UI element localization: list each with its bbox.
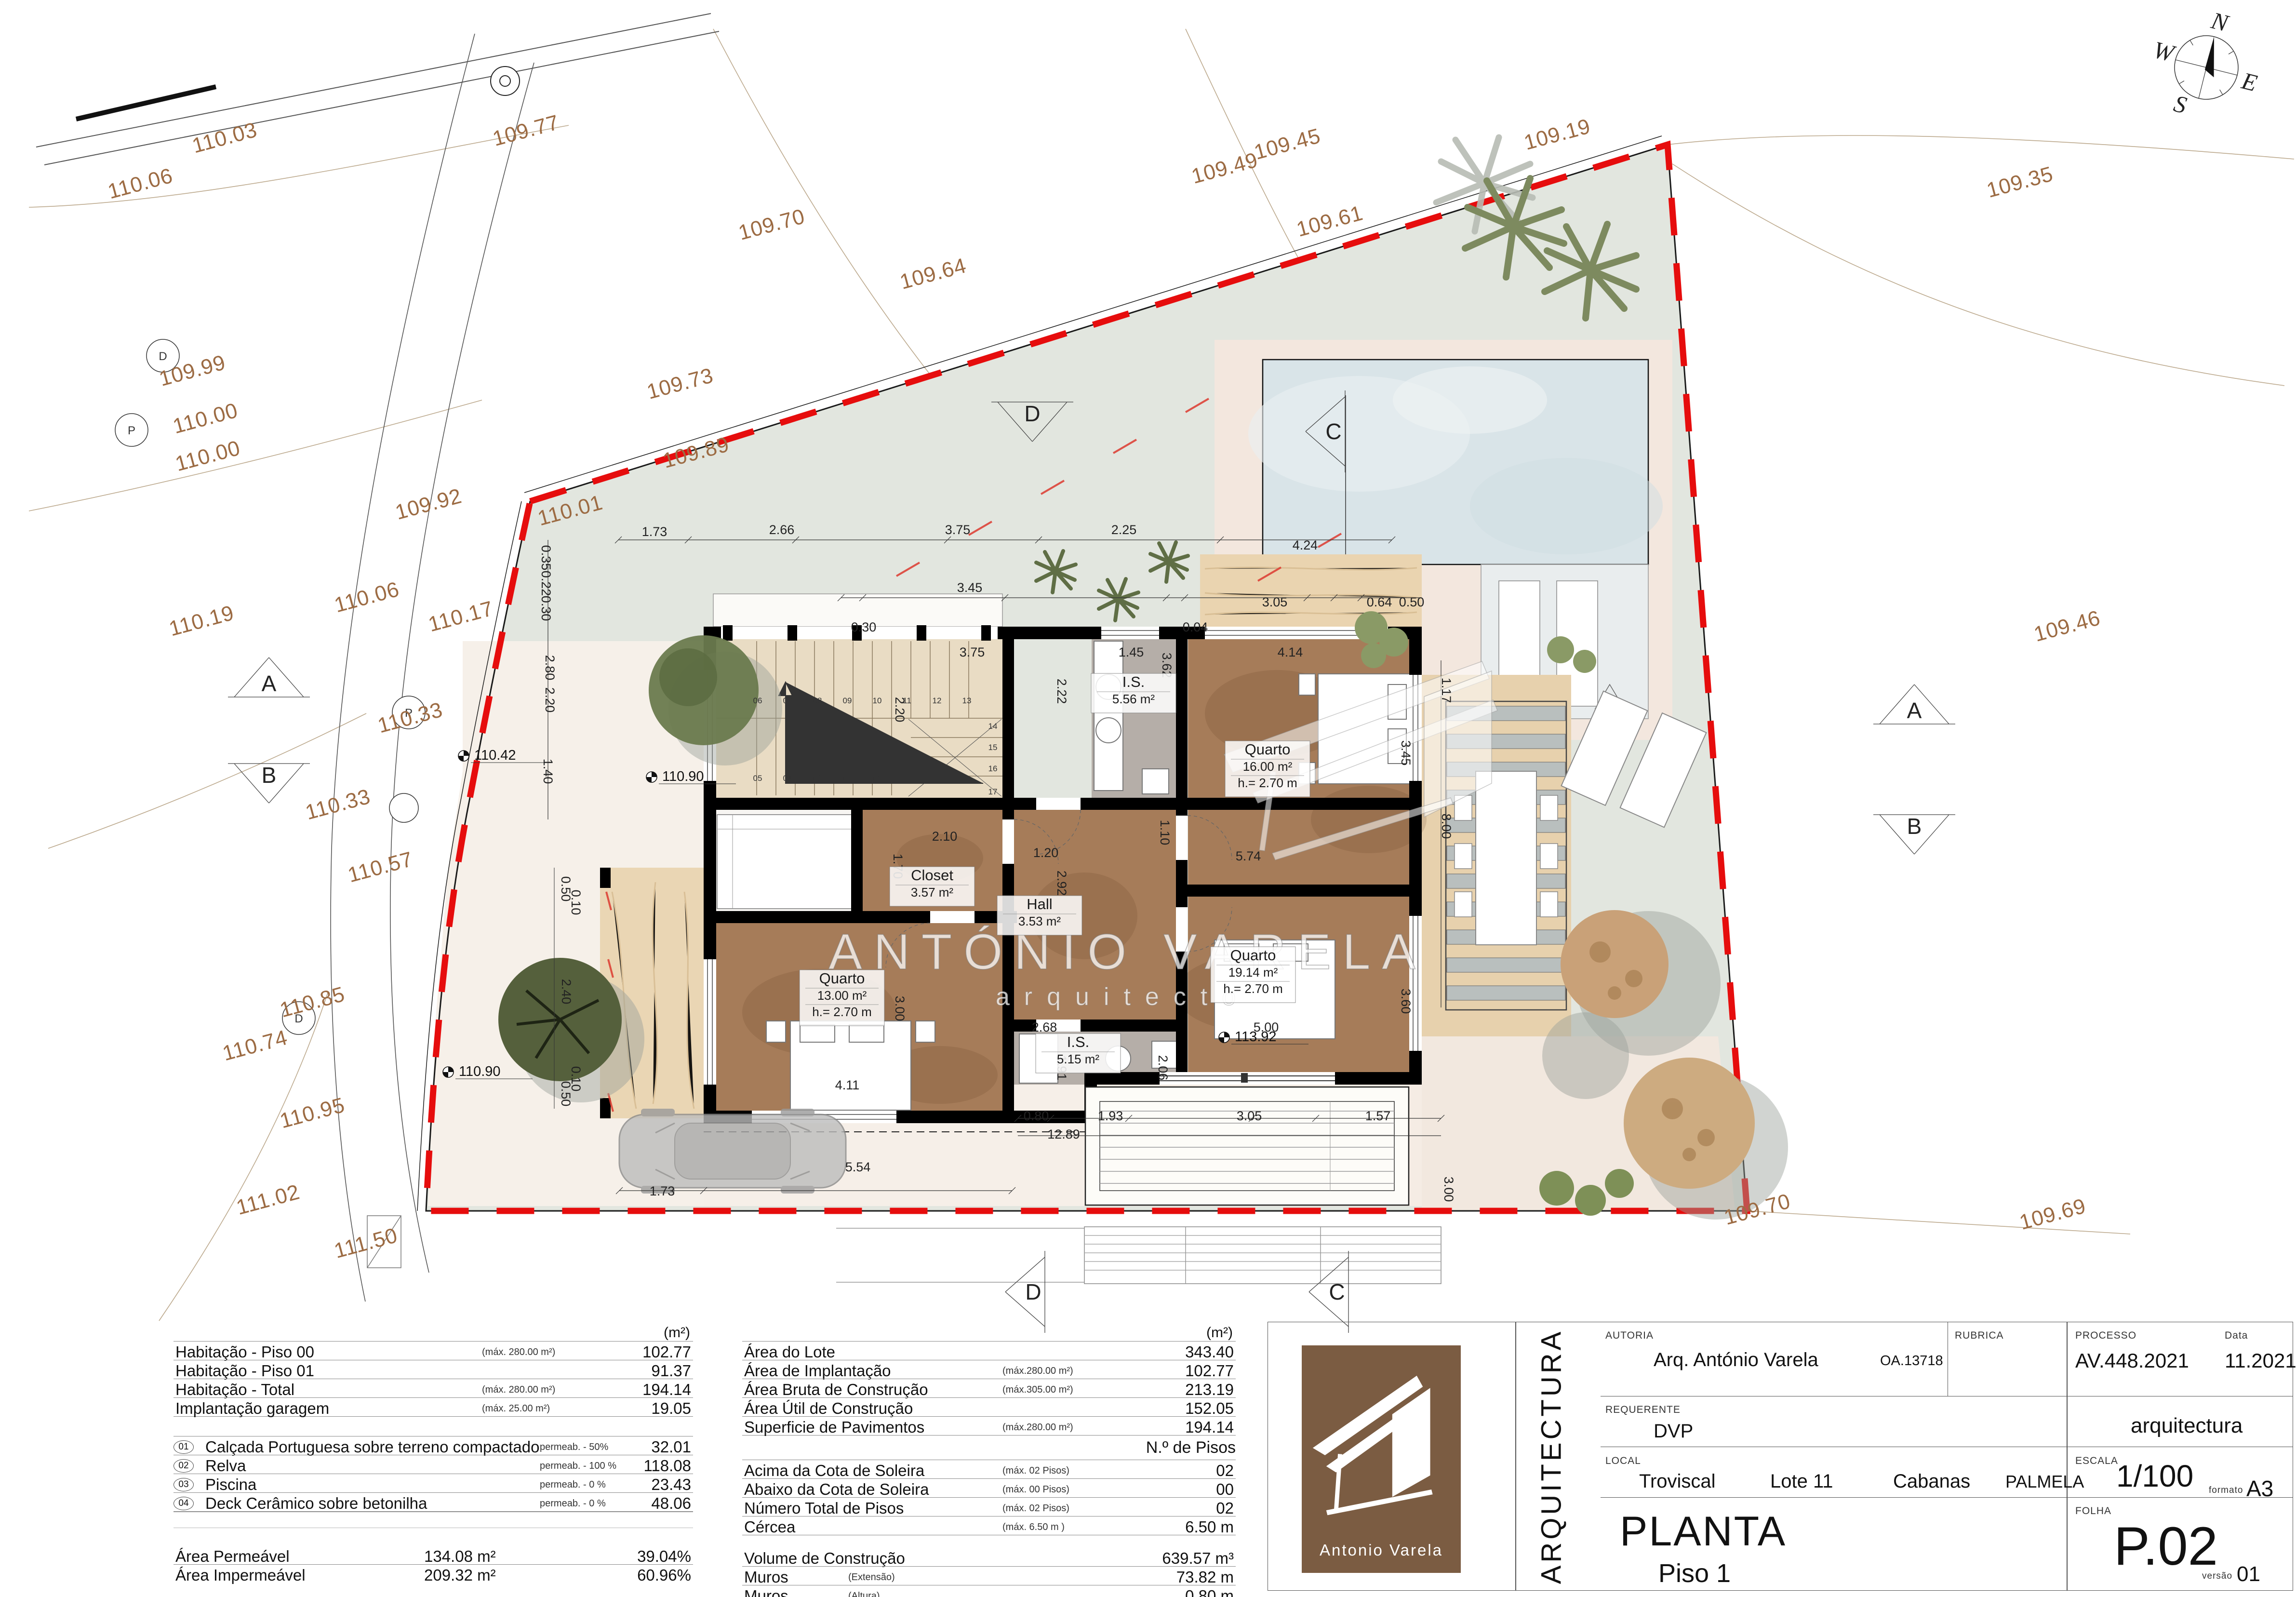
elevation-label: 109.35 (1984, 162, 2056, 202)
elevation-label: 110.17 (426, 597, 496, 637)
stair-number: 09 (843, 696, 852, 705)
room-sub: h.= 2.70 m (1223, 981, 1283, 996)
versao-value: 01 (2237, 1562, 2260, 1586)
table-row: Volume de Construção639.57 m³ (742, 1548, 1236, 1566)
room-name: I.S. (1067, 1033, 1090, 1050)
room-name: Hall (1027, 896, 1052, 913)
table-row: Acima da Cota de Soleira(máx. 02 Pisos)0… (742, 1460, 1236, 1478)
dimension-label: 2.80 (543, 655, 557, 681)
doc-subtitle: Piso 1 (1658, 1558, 1731, 1588)
section-letter: D (1025, 1279, 1041, 1304)
processo-label: PROCESSO (2075, 1330, 2136, 1342)
section-marker: A (1873, 684, 1955, 724)
table-row: Cércea(máx. 6.50 m )6.50 m (742, 1516, 1236, 1535)
dimension-label: 1.17 (1439, 678, 1454, 703)
table-row: Habitação - Piso 00(máx. 280.00 m²)102.7… (174, 1341, 693, 1360)
room-label: I.S.5.15 m² (1036, 1033, 1121, 1073)
section-letter: C (1325, 419, 1341, 444)
section-letter: A (262, 671, 277, 696)
escala-value: 1/100 (2116, 1458, 2193, 1494)
north-compass: N E W S (2139, 0, 2272, 134)
compass-e: E (2239, 67, 2260, 96)
spot-level-value: 110.90 (459, 1064, 501, 1079)
stair-number: 01 (873, 774, 882, 783)
folha-value: P.02 (2114, 1515, 2218, 1577)
formato-value: A3 (2246, 1476, 2273, 1502)
dimension-label: 2.68 (1032, 1020, 1057, 1034)
stair-number: 02 (843, 774, 852, 783)
areas-table-lote: (m²) Área do Lote343.40 Área de Implanta… (742, 1325, 1236, 1597)
drawing-sheet: DP PD (0, 0, 2296, 1597)
stair-number: 06 (753, 696, 762, 705)
autoria-label: AUTORIA (1605, 1330, 1654, 1342)
elevation-label: 110.57 (346, 847, 415, 887)
elevation-label: 110.33 (303, 785, 373, 825)
stair-number: 16 (988, 764, 998, 773)
stair-number: 10 (873, 696, 882, 705)
elevation-label: 111.02 (234, 1180, 302, 1220)
data-value: 11.2021 (2225, 1349, 2296, 1372)
room-label: Quarto13.00 m²h.= 2.70 m (800, 970, 884, 1026)
dimension-label: 3.05 (1262, 595, 1288, 609)
autoria-value: Arq. António Varela (1654, 1349, 1818, 1371)
dimension-label: 3.05 (1237, 1109, 1262, 1123)
dimension-label: 3.45 (957, 580, 983, 595)
dimension-label: 3.75 (945, 523, 971, 537)
table-row: Área Útil de Construção152.05 (742, 1397, 1236, 1416)
table-row: Número Total de Pisos(máx. 02 Pisos)02 (742, 1497, 1236, 1516)
stair-number: 17 (988, 787, 998, 796)
autoria-id: OA.13718 (1880, 1353, 1943, 1369)
dimension-label: 3.75 (960, 645, 985, 659)
processo-value: AV.448.2021 (2075, 1349, 2189, 1372)
local-cabanas: Cabanas (1893, 1471, 1970, 1492)
unit-header: (m²) (174, 1325, 693, 1341)
room-name: Quarto (819, 970, 865, 987)
local-troviscal: Troviscal (1639, 1471, 1716, 1492)
section-marker: B (1873, 814, 1955, 854)
elevation-label: 109.46 (2031, 606, 2103, 646)
dimension-label: 2.92 (1055, 871, 1069, 896)
elevation-label: 110.00 (173, 436, 243, 476)
table-row: Muros(Altura)0.80 m (742, 1585, 1236, 1597)
dimension-label: 4.14 (1278, 645, 1303, 659)
dimension-label: 3.60 (1399, 989, 1413, 1014)
legend-row: 04Deck Cerâmico sobre betonilhapermeab. … (174, 1492, 693, 1512)
discipline-vertical: ARQUITECTURA (1515, 1322, 1588, 1590)
pisos-header: N.º de Pisos (742, 1436, 1236, 1460)
dimension-label: 2.20 (543, 687, 557, 713)
room-name: Quarto (1245, 741, 1291, 758)
dimension-label: 1.10 (1158, 820, 1172, 845)
table-row: Área do Lote343.40 (742, 1341, 1236, 1360)
stair-number: 05 (753, 774, 762, 783)
elevation-label: 109.73 (644, 363, 716, 404)
dimension-label: 0.10 (569, 890, 583, 915)
elevation-label: 109.49 (1189, 148, 1260, 188)
room-sub: 5.56 m² (1112, 692, 1155, 706)
total-row: Área Impermeável209.32 m²60.96% (174, 1564, 693, 1583)
legend-row: 02Relvapermeab. - 100 %118.08 (174, 1455, 693, 1474)
room-sub: h.= 2.70 m (1238, 776, 1297, 790)
dimension-label: 3.00 (893, 996, 907, 1021)
table-row: Habitação - Piso 0191.37 (174, 1360, 693, 1379)
spot-level-value: 110.42 (474, 748, 516, 763)
spot-level-value: 110.90 (662, 769, 704, 784)
dimension-label: 1.73 (650, 1184, 675, 1198)
spot-level-value: 113.92 (1235, 1029, 1277, 1045)
room-label: I.S.5.56 m² (1091, 673, 1176, 713)
versao-label: versão (2202, 1571, 2232, 1582)
dimension-label: 4.24 (1293, 538, 1318, 552)
dimension-label: 0.50 (1399, 595, 1425, 609)
dimension-label: 1.57 (1365, 1109, 1391, 1123)
room-sub: h.= 2.70 m (812, 1005, 872, 1019)
stair-number: 15 (988, 743, 998, 752)
discipline-value: arquitectura (2131, 1414, 2243, 1438)
stair-number: 07 (783, 696, 792, 705)
section-marker: D (1005, 1251, 1045, 1333)
dimension-label: 12.89 (1047, 1127, 1080, 1141)
dimension-label: 2.06 (1156, 1055, 1170, 1081)
elevation-label: 110.00 (171, 399, 240, 439)
elevation-label: 109.77 (490, 110, 561, 151)
elevation-label: 110.74 (220, 1026, 290, 1066)
room-sub: 5.15 m² (1057, 1052, 1099, 1066)
elevation-label: 110.06 (106, 164, 175, 204)
room-label: Quarto16.00 m²h.= 2.70 m (1225, 741, 1310, 797)
exterior-steps (367, 1216, 1441, 1284)
stair-number: 08 (813, 696, 822, 705)
elevation-label: 110.06 (332, 577, 402, 617)
section-marker: B (228, 763, 310, 803)
elevation-label: 109.70 (736, 204, 807, 245)
table-row: Superficie de Pavimentos(máx.280.00 m²)1… (742, 1416, 1236, 1436)
room-label: Closet3.57 m² (890, 867, 974, 906)
stair-number: 13 (962, 696, 972, 705)
svg-text:D: D (159, 350, 167, 363)
dimension-label: 1.45 (1119, 645, 1144, 659)
section-marker: A (228, 658, 310, 697)
elevation-label: 110.19 (167, 601, 237, 641)
room-sub: 3.53 m² (1018, 914, 1061, 928)
elevation-label: 109.45 (1252, 124, 1323, 164)
dimension-label: 0.50 (559, 1081, 573, 1107)
folha-label: FOLHA (2075, 1505, 2111, 1517)
dimension-label: 0.04 (1183, 620, 1208, 634)
dimension-label: 1.20 (1033, 845, 1059, 860)
table-row: Muros(Extensão)73.82 m (742, 1566, 1236, 1585)
unit-header: (m²) (742, 1325, 1236, 1341)
table-row: Habitação - Total(máx. 280.00 m²)194.14 (174, 1379, 693, 1397)
section-letter: B (262, 763, 277, 788)
legend-row: 01Calçada Portuguesa sobre terreno compa… (174, 1436, 693, 1455)
stair-number: 14 (988, 722, 998, 731)
doc-title: PLANTA (1620, 1508, 1787, 1556)
svg-text:P: P (128, 424, 135, 437)
room-name: I.S. (1122, 673, 1145, 690)
data-label: Data (2225, 1330, 2248, 1342)
room-sub: 16.00 m² (1243, 759, 1293, 774)
stair-number: 03 (813, 774, 822, 783)
elevation-label: 109.64 (897, 254, 969, 294)
section-letter: D (1024, 401, 1040, 426)
architect-logo: Antonio Varela (1302, 1345, 1461, 1573)
dimension-label: 2.22 (1055, 679, 1069, 704)
dimension-label: 0.80 (1024, 1109, 1049, 1123)
room-label: Quarto19.14 m²h.= 2.70 m (1211, 947, 1295, 1003)
stair-number: 04 (783, 774, 792, 783)
dimension-label: 0.64 (1367, 595, 1392, 609)
dimension-label: 5.74 (1236, 849, 1261, 863)
dimension-label: 0.22 (539, 571, 553, 596)
total-row: Área Permeável134.08 m²39.04% (174, 1546, 693, 1564)
dimension-label: 0.30 (539, 596, 553, 621)
logo-name: Antonio Varela (1302, 1541, 1461, 1559)
dimension-label: 2.10 (932, 829, 958, 844)
car (619, 1109, 846, 1194)
stair-number: 11 (903, 696, 911, 705)
local-palmela: PALMELA (2005, 1472, 2084, 1492)
dimension-label: 3.00 (1442, 1177, 1456, 1202)
dimension-label: 0.35 (539, 545, 553, 571)
dimension-label: 3.45 (1399, 740, 1413, 766)
requerente-value: DVP (1654, 1421, 1693, 1442)
watermark-name: ANTÓNIO VARELA (828, 924, 1427, 980)
dimension-label: 2.25 (1111, 523, 1137, 537)
compass-s: S (2171, 90, 2189, 119)
section-letter: C (1329, 1279, 1345, 1304)
room-label: Hall3.53 m² (997, 896, 1082, 935)
compass-w: W (2150, 36, 2178, 67)
elevation-label: 109.69 (2017, 1194, 2088, 1235)
elevation-label: 109.92 (393, 484, 464, 524)
legend-row: 03Piscinapermeab. - 0 %23.43 (174, 1474, 693, 1492)
dimension-label: 1.93 (1098, 1109, 1123, 1123)
terrace-pergola (1085, 1087, 1409, 1205)
local-lote: Lote 11 (1770, 1471, 1833, 1492)
requerente-label: REQUERENTE (1605, 1404, 1681, 1416)
elevation-label: 110.03 (190, 118, 260, 158)
elevation-label: 109.19 (1522, 114, 1593, 155)
room-name: Closet (911, 867, 953, 884)
formato-label: formato (2209, 1485, 2243, 1496)
escala-label: ESCALA (2075, 1455, 2118, 1467)
title-block: Antonio Varela ARQUITECTURA AUTORIA Arq.… (1268, 1322, 2293, 1591)
areas-table-habitacao: (m²) Habitação - Piso 00(máx. 280.00 m²)… (174, 1325, 693, 1583)
section-letter: A (1907, 698, 1922, 723)
elevation-label: 109.61 (1294, 201, 1365, 242)
rubrica-label: RUBRICA (1955, 1330, 2004, 1342)
table-row: Área Bruta de Construção(máx.305.00 m²)2… (742, 1379, 1236, 1397)
dimension-label: 4.11 (835, 1078, 860, 1092)
room-sub: 19.14 m² (1228, 965, 1278, 980)
dimension-label: 2.40 (559, 979, 574, 1005)
dimension-label: 8.00 (1439, 814, 1454, 839)
dimension-label: 5.54 (845, 1160, 871, 1174)
section-letter: B (1907, 814, 1922, 839)
elevation-label: 110.95 (278, 1093, 347, 1133)
table-row: Abaixo da Cota de Soleira(máx. 00 Pisos)… (742, 1478, 1236, 1497)
table-row: Implantação garagem(máx. 25.00 m²)19.05 (174, 1397, 693, 1417)
house-logo-icon (1302, 1345, 1461, 1538)
local-label: LOCAL (1605, 1455, 1641, 1467)
dimension-label: 0.30 (851, 620, 877, 634)
table-row: Área de Implantação(máx.280.00 m²)102.77 (742, 1360, 1236, 1379)
room-sub: 13.00 m² (817, 988, 867, 1003)
room-sub: 3.57 m² (911, 885, 953, 899)
room-name: Quarto (1230, 947, 1276, 964)
dimension-label: 1.73 (642, 524, 667, 539)
compass-n: N (2208, 6, 2232, 37)
dimension-label: 2.66 (769, 523, 795, 537)
stair-number: 12 (933, 696, 942, 705)
elevation-label: 111.50 (332, 1223, 400, 1263)
